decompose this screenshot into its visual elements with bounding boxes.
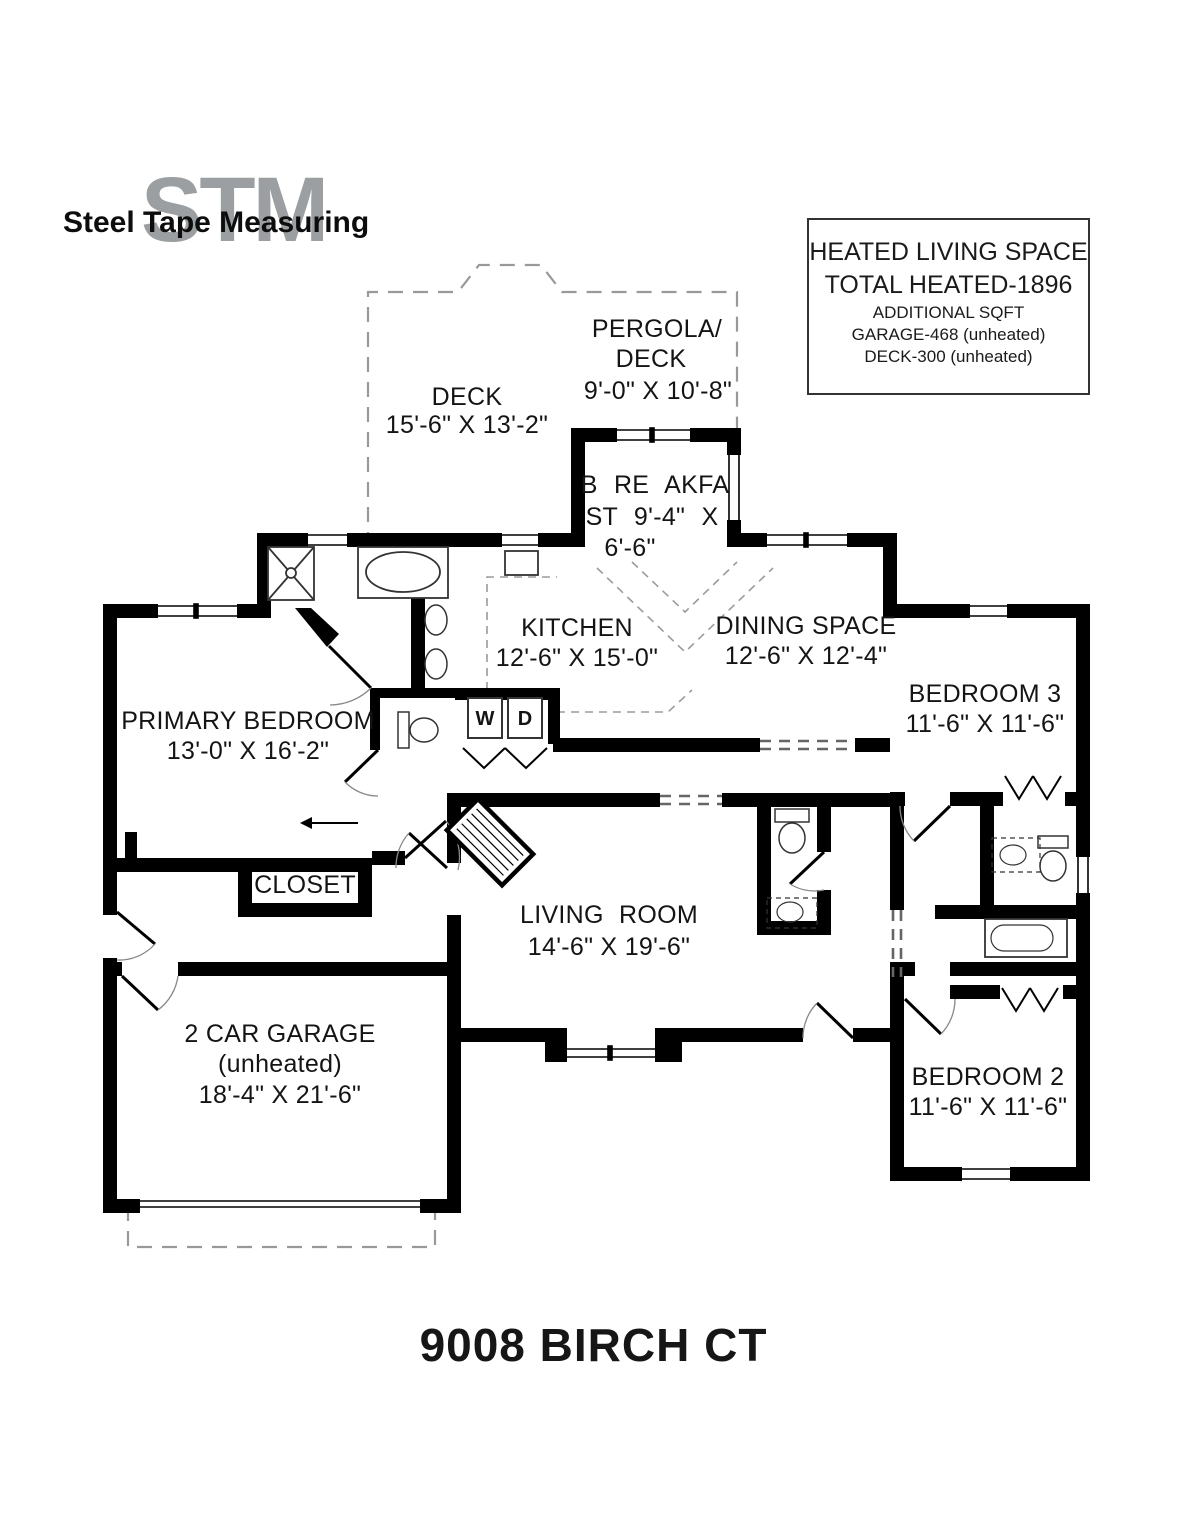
label-closet: CLOSET xyxy=(254,871,356,899)
label-dining: DINING SPACE xyxy=(716,612,897,640)
label-breakfast-3: 6'-6" xyxy=(604,534,655,562)
label-garage: 2 CAR GARAGE xyxy=(184,1020,375,1048)
label-washer: W xyxy=(476,708,495,730)
label-dining-dims: 12'-6" X 12'-4" xyxy=(725,642,887,670)
label-pergola-1: PERGOLA/ xyxy=(592,315,722,343)
closet-rod-arrow xyxy=(300,817,358,829)
label-deck-dims: 15'-6" X 13'-2" xyxy=(386,411,548,439)
floorplan-svg: DECK 15'-6" X 13'-2" PERGOLA/ DECK 9'-0"… xyxy=(0,0,1187,1536)
shower xyxy=(268,547,314,600)
toilet-powder xyxy=(775,809,809,853)
vanity-hall-bath xyxy=(992,838,1040,872)
label-primary-dims: 13'-0" X 16'-2" xyxy=(167,737,329,765)
label-living: LIVING ROOM xyxy=(520,901,698,929)
toilet-hall-bath xyxy=(1038,836,1068,881)
label-living-dims: 14'-6" X 19'-6" xyxy=(528,933,690,961)
floorplan-page: STM Steel Tape Measuring HEATED LIVING S… xyxy=(0,0,1187,1536)
label-kitchen: KITCHEN xyxy=(521,614,633,642)
vanity-sinks-primary xyxy=(425,605,447,679)
bathtub-hall xyxy=(985,919,1067,957)
openings-layer xyxy=(660,741,901,977)
label-pergola-2: DECK xyxy=(616,345,687,373)
label-garage-sub: (unheated) xyxy=(218,1050,342,1078)
label-bedroom2-dims: 11'-6" X 11'-6" xyxy=(909,1093,1068,1121)
label-primary: PRIMARY BEDROOM xyxy=(121,707,375,735)
label-dryer: D xyxy=(518,708,532,730)
label-deck: DECK xyxy=(432,383,503,411)
garage-apron-outline xyxy=(128,1206,435,1247)
kitchen-range xyxy=(505,551,538,575)
label-pergola-dims: 9'-0" X 10'-8" xyxy=(584,377,732,405)
label-kitchen-dims: 12'-6" X 15'-0" xyxy=(496,644,658,672)
bathtub-primary xyxy=(358,547,448,598)
label-bedroom2: BEDROOM 2 xyxy=(912,1063,1065,1091)
toilet-primary xyxy=(398,712,438,748)
label-bedroom3: BEDROOM 3 xyxy=(909,680,1062,708)
label-breakfast-2: ST 9'-4" X xyxy=(586,503,719,531)
label-breakfast-1: B RE AKFA xyxy=(581,471,730,499)
plan-title: 9008 BIRCH CT xyxy=(0,1318,1187,1372)
label-bedroom3-dims: 11'-6" X 11'-6" xyxy=(906,710,1065,738)
label-garage-dims: 18'-4" X 21'-6" xyxy=(199,1081,361,1109)
